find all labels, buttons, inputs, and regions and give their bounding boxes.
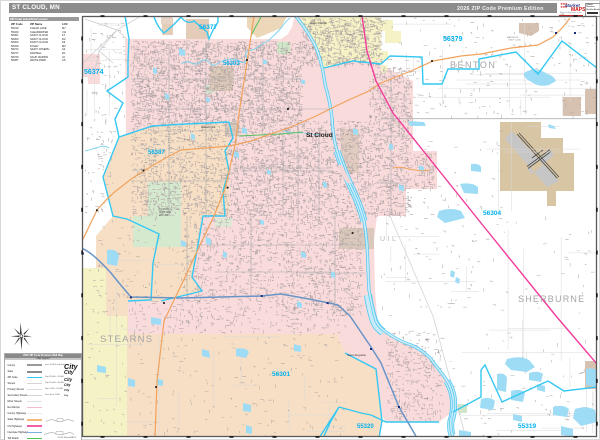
svg-text:55320: 55320 — [357, 424, 374, 430]
svg-text:56374: 56374 — [84, 69, 104, 76]
svg-text:56301: 56301 — [272, 371, 290, 378]
svg-text:Waite Park: Waite Park — [201, 125, 216, 129]
svg-text:NATURE: NATURE — [159, 214, 169, 217]
svg-text:GOLF CLUB: GOLF CLUB — [508, 40, 521, 42]
svg-text:St Cloud: St Cloud — [306, 132, 333, 139]
svg-text:56379: 56379 — [443, 36, 463, 43]
svg-text:56387: 56387 — [148, 150, 165, 156]
svg-text:STEARNS: STEARNS — [100, 334, 153, 345]
svg-text:SHERBURNE: SHERBURNE — [518, 294, 585, 304]
svg-text:55319: 55319 — [518, 423, 536, 430]
svg-text:56377: 56377 — [199, 24, 217, 31]
svg-text:UIL: UIL — [380, 236, 398, 243]
svg-text:BENTON: BENTON — [450, 60, 496, 70]
svg-text:56304: 56304 — [483, 210, 501, 217]
svg-text:56303: 56303 — [223, 61, 240, 67]
svg-text:Saint Augusta: Saint Augusta — [347, 353, 366, 357]
svg-text:Sauk Rapids: Sauk Rapids — [310, 21, 328, 25]
